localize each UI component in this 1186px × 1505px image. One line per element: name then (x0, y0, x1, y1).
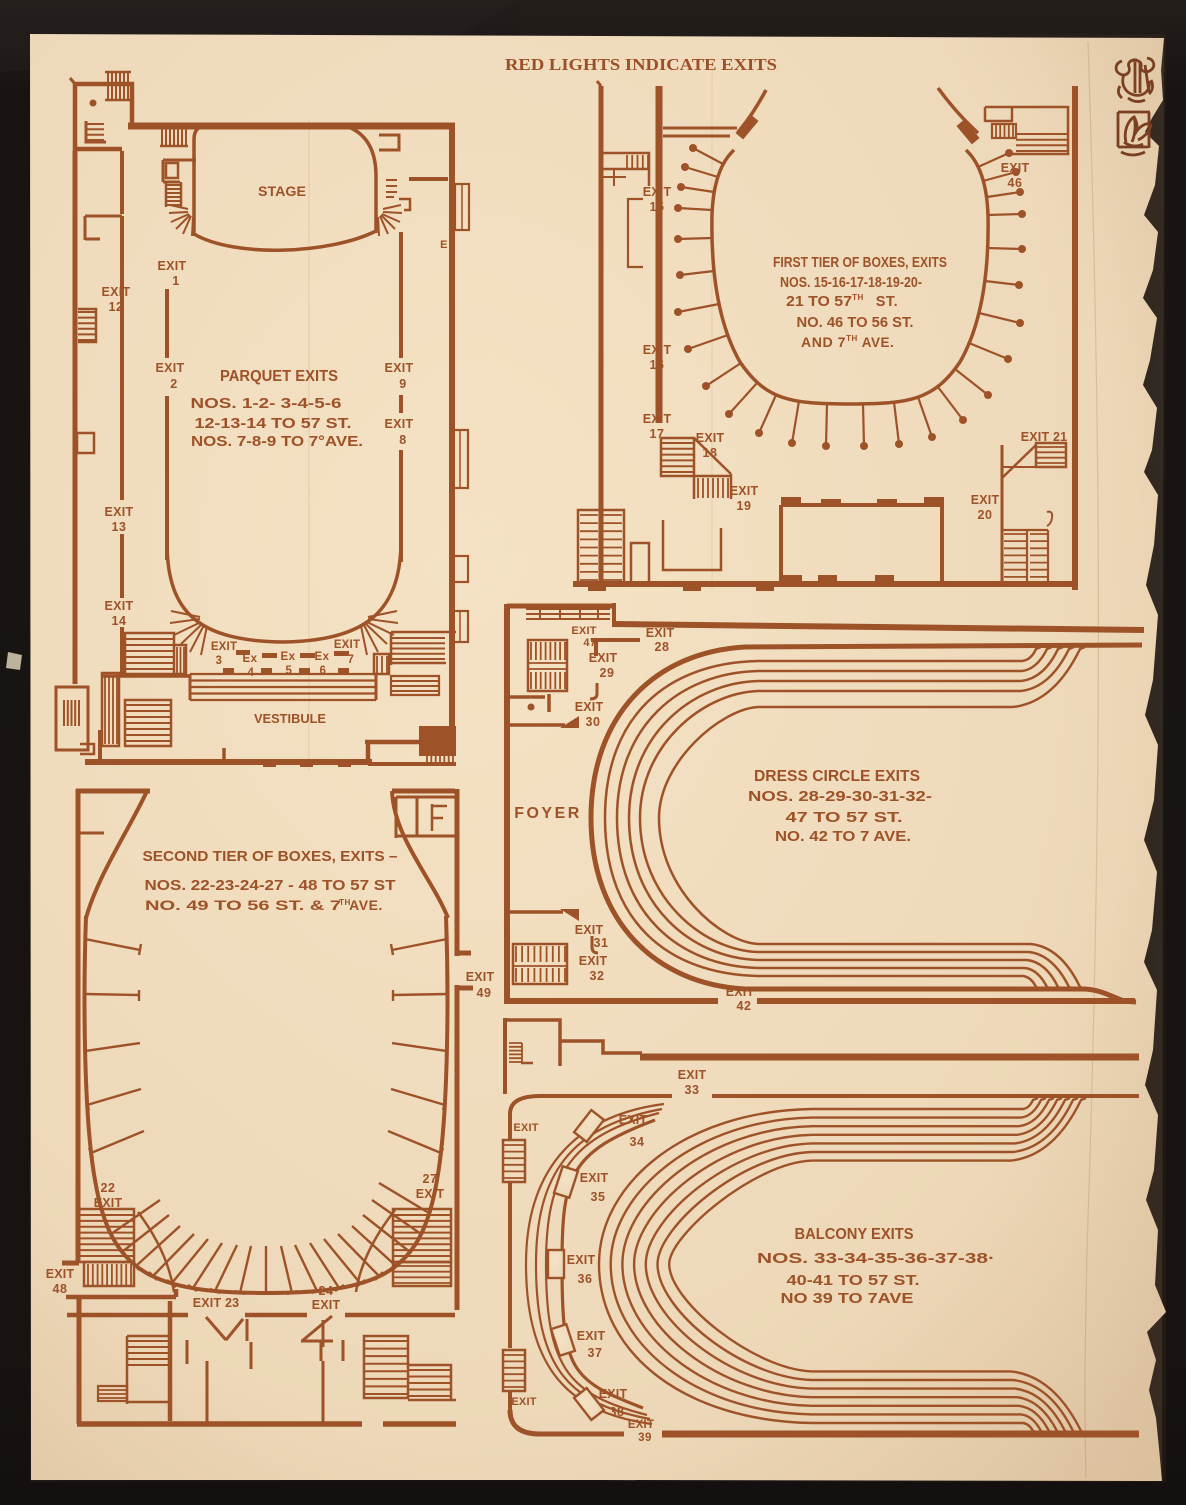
svg-text:16: 16 (650, 358, 665, 372)
svg-text:8: 8 (399, 433, 406, 447)
svg-text:EXIT: EXIT (643, 343, 672, 357)
svg-text:EXIT: EXIT (580, 1171, 609, 1185)
svg-text:EXIT: EXIT (619, 1113, 648, 1127)
svg-text:EXIT: EXIT (575, 923, 604, 937)
svg-text:38: 38 (610, 1405, 625, 1419)
svg-text:NOS. 33-34-35-36-37-38·: NOS. 33-34-35-36-37-38· (757, 1250, 995, 1267)
svg-text:Ex: Ex (314, 651, 329, 663)
svg-text:48: 48 (53, 1282, 68, 1296)
svg-text:TH: TH (846, 334, 858, 343)
svg-text:EXIT: EXIT (577, 1329, 606, 1343)
svg-text:30: 30 (586, 715, 601, 729)
svg-text:AVE.: AVE. (349, 897, 383, 913)
svg-text:27: 27 (423, 1172, 438, 1186)
svg-text:EXIT 23: EXIT 23 (193, 1296, 240, 1310)
svg-text:EXIT: EXIT (571, 625, 596, 637)
svg-text:EXIT: EXIT (678, 1068, 707, 1082)
svg-text:37: 37 (588, 1346, 603, 1360)
svg-text:36: 36 (578, 1272, 593, 1286)
svg-text:EXIT: EXIT (416, 1187, 445, 1201)
svg-text:39: 39 (638, 1432, 652, 1444)
svg-text:19: 19 (737, 499, 752, 513)
svg-text:EXIT: EXIT (105, 505, 134, 519)
svg-text:EXIT: EXIT (46, 1267, 75, 1281)
svg-text:40-41 TO 57 ST.: 40-41 TO 57 ST. (787, 1273, 920, 1289)
svg-text:NOS. 28-29-30-31-32-: NOS. 28-29-30-31-32- (748, 789, 932, 805)
svg-text:24: 24 (319, 1284, 334, 1298)
svg-text:28: 28 (655, 640, 670, 654)
svg-text:TH: TH (852, 293, 864, 302)
svg-text:EXIT: EXIT (211, 641, 237, 653)
svg-text:NOS. 22-23-24-27 - 48 TO 57 S: NOS. 22-23-24-27 - 48 TO 57 ST (145, 878, 396, 894)
svg-text:EXIT: EXIT (334, 639, 360, 651)
svg-text:29: 29 (600, 666, 615, 680)
svg-text:EXIT: EXIT (567, 1253, 596, 1267)
svg-text:32: 32 (590, 969, 605, 983)
svg-text:AVE.: AVE. (862, 335, 895, 350)
svg-text:STAGE: STAGE (258, 184, 306, 199)
svg-text:15: 15 (650, 200, 665, 214)
svg-text:EXIT: EXIT (156, 361, 185, 375)
svg-text:ST.: ST. (876, 294, 898, 310)
svg-text:E: E (440, 239, 448, 251)
svg-text:EXIT: EXIT (971, 493, 1000, 507)
svg-text:NOS. 15-16-17-18-19-20-: NOS. 15-16-17-18-19-20- (780, 275, 922, 291)
svg-text:NO. 42 TO 7 AVE.: NO. 42 TO 7 AVE. (775, 829, 911, 845)
svg-text:VESTIBULE: VESTIBULE (254, 712, 326, 726)
svg-text:Ex: Ex (280, 651, 295, 663)
svg-text:EXIT: EXIT (466, 970, 495, 984)
svg-text:35: 35 (591, 1190, 606, 1204)
svg-text:20: 20 (978, 508, 993, 522)
svg-text:EXIT: EXIT (643, 412, 672, 426)
svg-text:7: 7 (348, 654, 355, 666)
svg-text:EXIT: EXIT (599, 1387, 628, 1401)
svg-text:SECOND TIER OF BOXES, EXITS –: SECOND TIER OF BOXES, EXITS – (143, 848, 398, 865)
svg-text:9: 9 (399, 377, 406, 391)
svg-text:42: 42 (737, 999, 752, 1013)
svg-text:21 TO 57: 21 TO 57 (786, 294, 852, 310)
svg-text:14: 14 (112, 614, 127, 628)
svg-text:Ex: Ex (242, 653, 257, 665)
svg-text:PARQUET EXITS: PARQUET EXITS (220, 368, 338, 385)
svg-text:EXIT: EXIT (312, 1298, 341, 1312)
svg-text:6: 6 (320, 665, 327, 677)
svg-text:22: 22 (101, 1181, 116, 1195)
svg-text:BALCONY EXITS: BALCONY EXITS (795, 1226, 914, 1243)
svg-text:NO 39 TO 7AVE: NO 39 TO 7AVE (781, 1291, 914, 1307)
svg-text:EXIT: EXIT (1001, 161, 1030, 175)
svg-text:NO. 46 TO 56 ST.: NO. 46 TO 56 ST. (797, 315, 914, 331)
svg-text:DRESS CIRCLE EXITS: DRESS CIRCLE EXITS (754, 768, 920, 785)
svg-text:RED LIGHTS INDICATE EXITS: RED LIGHTS INDICATE EXITS (505, 55, 777, 74)
svg-text:46: 46 (1008, 176, 1023, 190)
svg-text:12-13-14 TO 57 ST.: 12-13-14 TO 57 ST. (195, 416, 352, 432)
svg-text:EXIT: EXIT (589, 651, 618, 665)
svg-text:NO. 49 TO 56 ST. & 7: NO. 49 TO 56 ST. & 7 (145, 897, 341, 913)
svg-text:EXIT: EXIT (575, 700, 604, 714)
svg-text:EXIT: EXIT (105, 599, 134, 613)
svg-text:3: 3 (216, 655, 223, 667)
svg-text:12: 12 (109, 300, 124, 314)
svg-text:FIRST TIER OF BOXES, EXITS: FIRST TIER OF BOXES, EXITS (773, 254, 947, 271)
svg-text:13: 13 (112, 520, 127, 534)
svg-text:34: 34 (630, 1135, 645, 1149)
svg-text:EXIT: EXIT (730, 484, 759, 498)
svg-text:2: 2 (170, 377, 177, 391)
svg-text:EXIT: EXIT (385, 417, 414, 431)
svg-text:EXIT: EXIT (158, 259, 187, 273)
svg-text:31: 31 (594, 936, 609, 950)
svg-text:FOYER: FOYER (514, 805, 582, 822)
svg-text:EXIT: EXIT (102, 285, 131, 299)
svg-text:49: 49 (477, 986, 492, 1000)
svg-text:AND 7: AND 7 (801, 335, 846, 350)
svg-text:NOS. 7-8-9 TO 7°AVE.: NOS. 7-8-9 TO 7°AVE. (191, 434, 363, 450)
svg-text:33: 33 (685, 1083, 700, 1097)
svg-text:EXIT: EXIT (385, 361, 414, 375)
svg-text:1: 1 (172, 274, 179, 288)
svg-text:EXIT: EXIT (646, 626, 675, 640)
svg-text:47 TO 57 ST.: 47 TO 57 ST. (786, 810, 903, 826)
svg-text:5: 5 (286, 665, 293, 677)
svg-text:EXIT: EXIT (513, 1122, 538, 1134)
svg-text:EXIT: EXIT (511, 1396, 536, 1408)
svg-text:EXIT: EXIT (579, 954, 608, 968)
svg-text:EXIT: EXIT (643, 185, 672, 199)
svg-text:NOS. 1-2- 3-4-5-6: NOS. 1-2- 3-4-5-6 (191, 396, 342, 412)
